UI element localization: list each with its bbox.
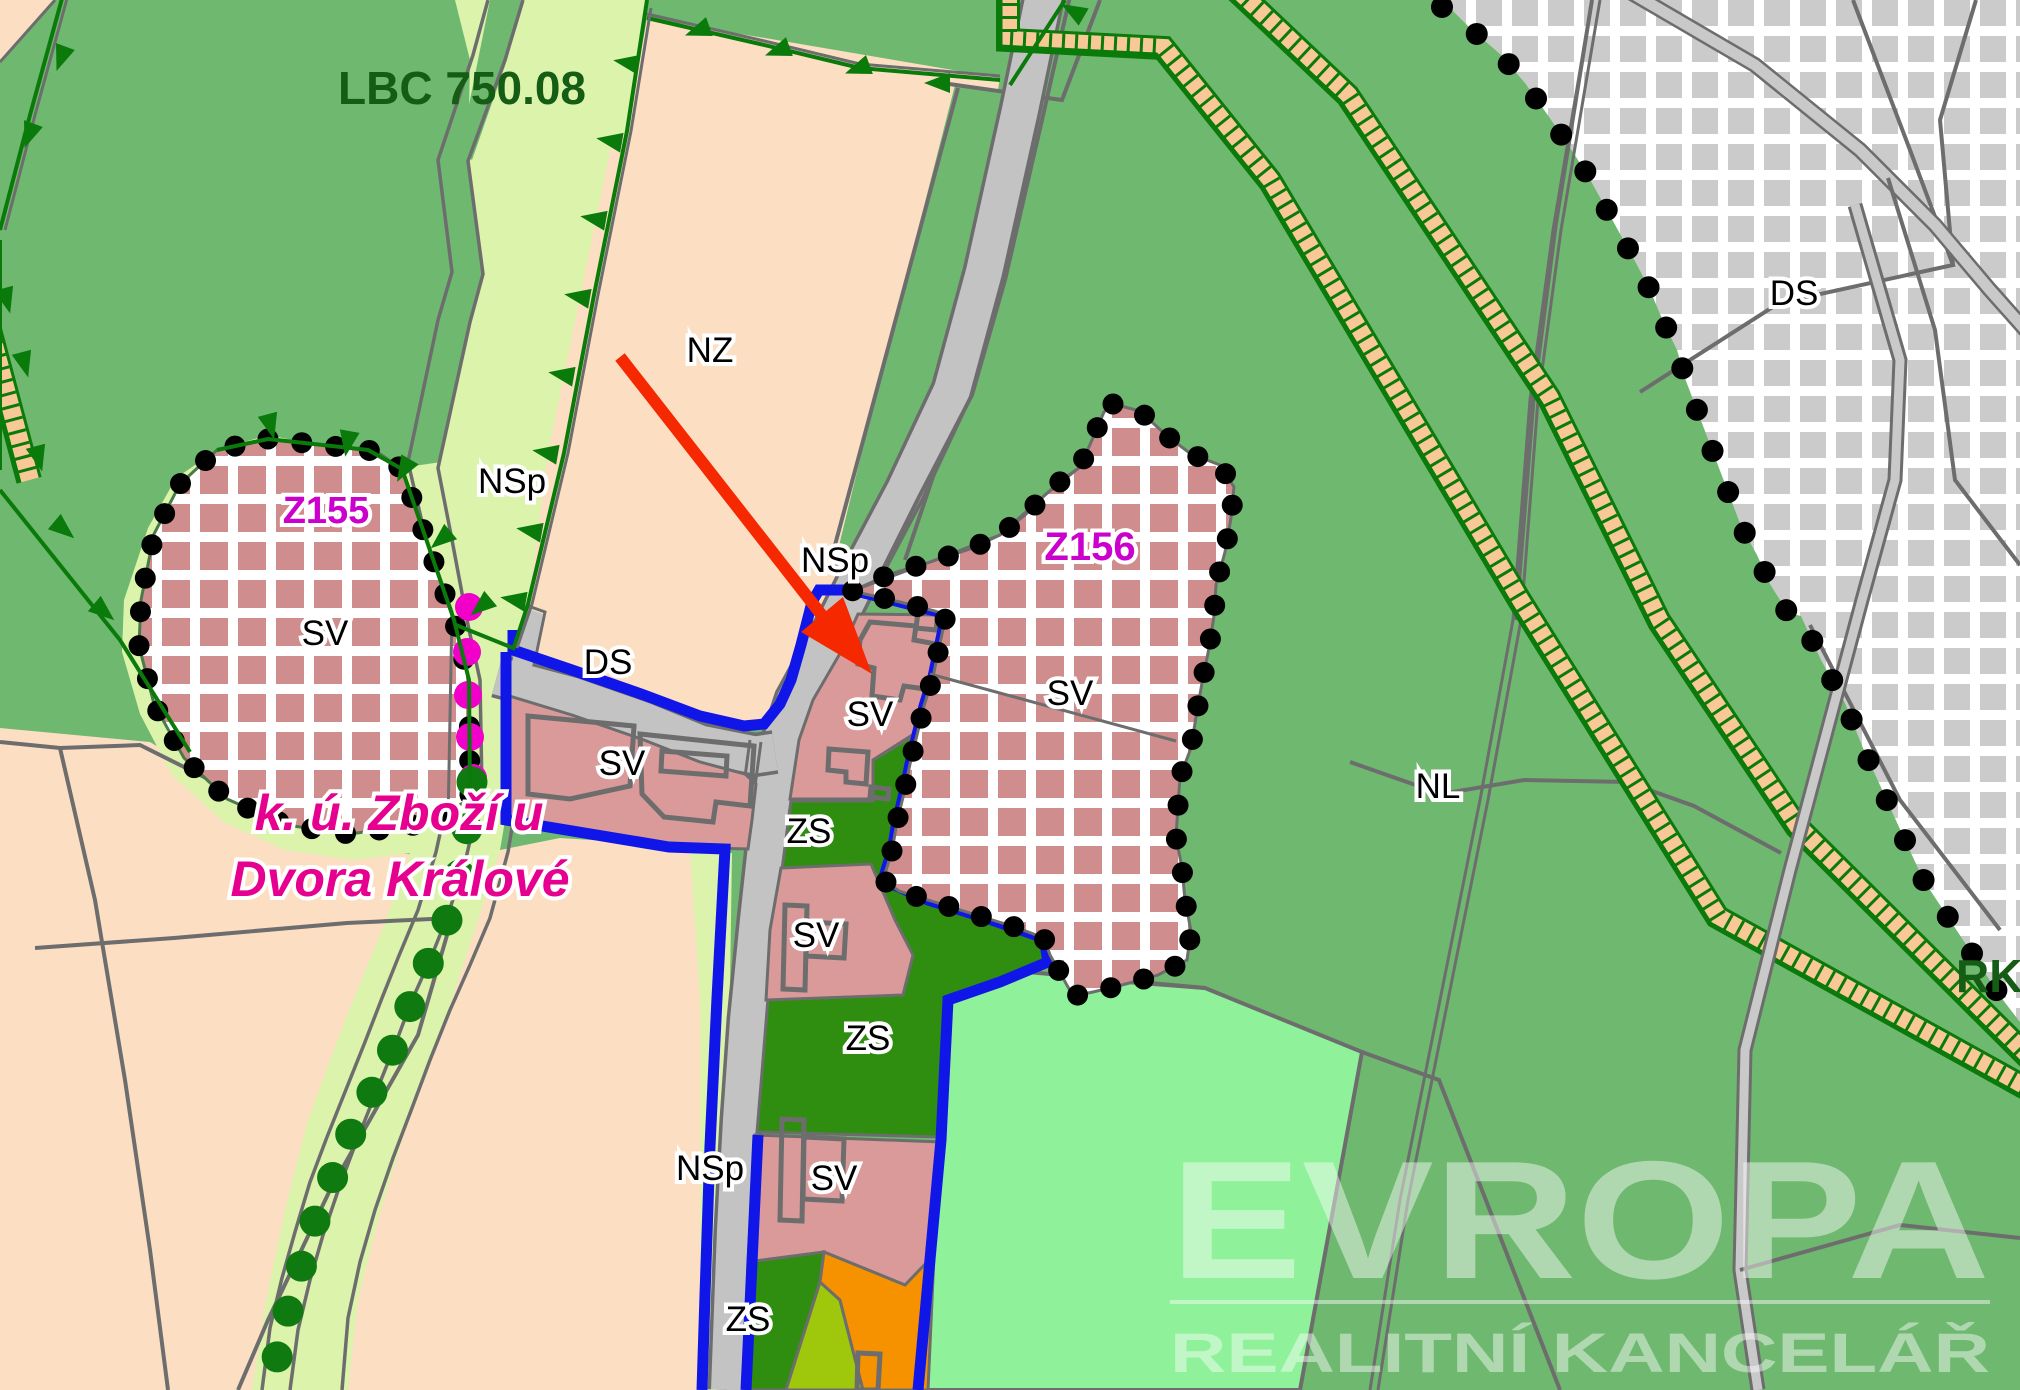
svg-text:DS: DS <box>584 643 633 682</box>
svg-text:Z155: Z155 <box>283 490 370 532</box>
svg-text:DS: DS <box>1770 274 1819 313</box>
svg-text:NSp: NSp <box>801 541 869 580</box>
svg-text:LBC 750.08: LBC 750.08 <box>338 62 586 114</box>
svg-text:RK: RK <box>1956 950 2020 1002</box>
svg-text:SV: SV <box>302 614 349 653</box>
svg-text:k. ú. Zboží u: k. ú. Zboží u <box>255 785 544 841</box>
svg-text:Z156: Z156 <box>1044 525 1135 569</box>
svg-text:SV: SV <box>811 1159 858 1198</box>
svg-text:NSp: NSp <box>676 1149 744 1188</box>
svg-text:ZS: ZS <box>726 1300 771 1339</box>
svg-text:SV: SV <box>599 744 646 783</box>
svg-text:SV: SV <box>793 916 840 955</box>
svg-text:NSp: NSp <box>478 462 546 501</box>
svg-text:EVROPA: EVROPA <box>1170 1126 1990 1314</box>
svg-text:SV: SV <box>1047 674 1094 713</box>
svg-text:NZ: NZ <box>687 331 734 370</box>
svg-text:REALITNÍ KANCELÁŘ: REALITNÍ KANCELÁŘ <box>1170 1321 1990 1384</box>
svg-text:SV: SV <box>847 695 894 734</box>
svg-text:ZS: ZS <box>787 812 832 851</box>
svg-text:Dvora Králové: Dvora Králové <box>230 851 569 907</box>
svg-text:ZS: ZS <box>846 1019 891 1058</box>
svg-text:NL: NL <box>1416 767 1461 806</box>
